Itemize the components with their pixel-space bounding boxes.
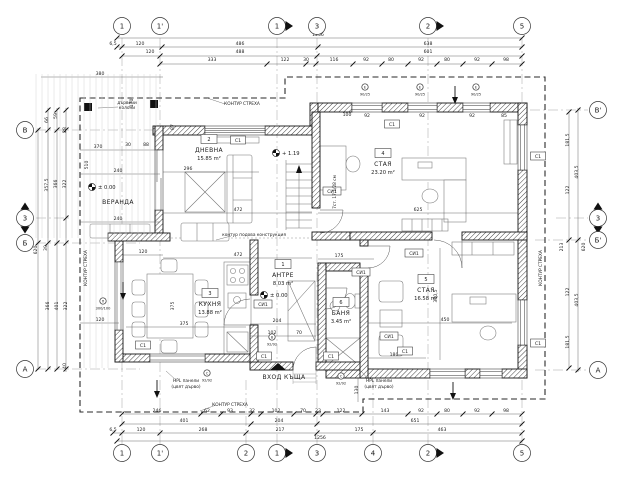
annotation: контур подова конструкция xyxy=(222,233,286,238)
annotation: (цвят дърво) xyxy=(364,384,393,390)
chair xyxy=(161,340,177,353)
axis-bubble-2: 2 xyxy=(238,445,255,462)
veranda-label: ВЕРАНДА xyxy=(102,199,134,206)
axis-label: В' xyxy=(595,106,602,114)
room-area: 15.85 m² xyxy=(197,156,221,162)
axis-label: 3 xyxy=(23,214,27,222)
bookshelf xyxy=(402,219,448,231)
dimension-text: 370 xyxy=(94,144,103,150)
dimension-text: 120 xyxy=(96,317,105,323)
dimension-text: 28 xyxy=(62,127,68,133)
dimension-text: 488 xyxy=(236,49,245,55)
tag-letter: П xyxy=(102,299,105,303)
axis-label: А xyxy=(23,365,28,373)
room-number: 5 xyxy=(424,277,427,283)
dimension-text: 66 xyxy=(44,117,50,123)
axis-bubble-4: 4 xyxy=(365,445,382,462)
tag-numbers: 92/92 xyxy=(267,343,277,347)
window-tag: С1 xyxy=(140,343,146,349)
dimension-text: 180 xyxy=(390,352,399,358)
dimension-text: 93 xyxy=(227,408,233,414)
desk-l-horizontal xyxy=(402,158,466,180)
dimension-text: 98 xyxy=(503,408,509,414)
door-tag: СИ1 xyxy=(384,334,394,340)
axis-bubble-1: 1 xyxy=(114,445,131,462)
dimension-text: 175 xyxy=(355,427,364,433)
chair xyxy=(132,322,145,337)
room-area: 8.03 m² xyxy=(273,281,293,287)
axis-bubble-Б: Б xyxy=(17,235,34,252)
furniture xyxy=(90,120,517,366)
room-area: 13.88 m² xyxy=(198,310,222,316)
dimension-text: 120 xyxy=(136,41,145,47)
dimension-text: 322 xyxy=(62,180,68,189)
desk-chair xyxy=(422,189,438,203)
axis-bubble-В: В xyxy=(17,122,34,139)
chair xyxy=(161,259,177,272)
room-name: КУХНЯ xyxy=(199,301,222,308)
dimension-text: 122 xyxy=(565,288,571,297)
floor-plan-drawing: 12566,5120486638120488601333122301169280… xyxy=(0,0,625,482)
element-tag: П300/100 xyxy=(96,298,112,311)
annotation: 7ст. 17.1/28 см xyxy=(332,175,338,209)
dimension-text: 87 xyxy=(170,124,176,130)
axis-label: 1 xyxy=(275,22,279,30)
dimension-text: 70 xyxy=(296,330,302,336)
wood-column xyxy=(150,100,158,108)
dimension-text: 625 xyxy=(414,207,423,213)
axis-label: 5 xyxy=(520,449,524,457)
wardrobe xyxy=(452,242,514,255)
dimension-text: 143 xyxy=(381,408,390,414)
axis-label: Б xyxy=(23,239,28,247)
window-tag: С1 xyxy=(535,341,541,347)
dimension-text: 102 xyxy=(272,408,281,414)
desk xyxy=(452,294,516,322)
dimension-text: 333 xyxy=(208,57,217,63)
dimension-text: 240 xyxy=(114,216,123,222)
dimension-text: 366 xyxy=(45,302,51,311)
axis-label: 4 xyxy=(371,449,376,457)
floor-plan-sheet: 12566,5120486638120488601333122301169280… xyxy=(0,0,625,482)
level-marker: ± 0.00 xyxy=(89,184,116,192)
dimension-text: 92 xyxy=(419,113,425,119)
dimension-text: 181,5 xyxy=(565,133,571,146)
dimension-text: 246 xyxy=(153,408,162,414)
axis-label: 1 xyxy=(275,449,279,457)
dimension-text: 472 xyxy=(234,252,243,258)
room-label-антре: 1АНТРЕ8.03 m² xyxy=(272,260,294,288)
dimension-text: 120 xyxy=(137,427,146,433)
room-area: 16.58 m² xyxy=(414,296,438,302)
axis-bubble-1: 1 xyxy=(269,18,294,35)
axis-label: Б' xyxy=(595,236,602,244)
axis-label: 3 xyxy=(315,22,319,30)
room-number: 6 xyxy=(339,300,342,306)
chair xyxy=(132,280,145,295)
dimension-text: 601 xyxy=(424,49,433,55)
tag-letter: Е xyxy=(475,85,477,89)
dimension-text: 98 xyxy=(503,57,509,63)
annotation: КОНТУР СТРЕХА xyxy=(538,250,544,286)
dimension-text: 217 xyxy=(276,427,285,433)
dimension-text: 510 xyxy=(84,161,90,170)
section-arrow xyxy=(437,448,445,458)
room-area: 3.45 m² xyxy=(331,319,351,325)
annotation: КОНТУР СТРЕХА xyxy=(224,101,260,107)
desk-l-vertical xyxy=(444,180,466,222)
dimension-text: 401 xyxy=(54,302,60,311)
annotation: (цвят дърво) xyxy=(171,384,200,390)
dimension-text: 122 xyxy=(565,186,571,195)
dimension-text: 120 xyxy=(139,249,148,255)
dimension-text: 638 xyxy=(424,41,433,47)
tag-numbers: 92/92 xyxy=(202,379,212,383)
room-number: 1 xyxy=(281,262,284,268)
element-tag: С92/92 xyxy=(202,370,212,383)
dimension-text: 366 xyxy=(53,180,59,189)
axis-bubble-А: А xyxy=(590,362,607,379)
tag-numbers: 300/100 xyxy=(96,307,112,311)
dimension-text: 175 xyxy=(335,253,344,259)
axis-bubble-2: 2 xyxy=(420,445,445,462)
dimension-text: 403,5 xyxy=(574,165,580,178)
axis-bubble-1: 1 xyxy=(269,445,294,462)
room-name: СТАЯ xyxy=(374,161,392,168)
dimension-text: 240 xyxy=(114,168,123,174)
dimension-text: 80 xyxy=(444,57,450,63)
tag-numbers: 92/92 xyxy=(336,382,346,386)
dimension-text: 92 xyxy=(364,113,370,119)
dimension-text: 620 xyxy=(33,246,39,255)
dimension-text: 30 xyxy=(125,142,131,148)
section-arrow xyxy=(286,21,294,31)
axis-label: 2 xyxy=(244,449,248,457)
tall-cabinet xyxy=(504,120,517,164)
dimension-text: 59 xyxy=(53,113,59,119)
side-table xyxy=(380,310,402,327)
annotation: HPL панели xyxy=(366,378,392,384)
axis-bubble-В': В' xyxy=(590,102,607,119)
tag-letter: Е xyxy=(364,85,366,89)
toilet-tank xyxy=(355,294,360,308)
axis-label: 1 xyxy=(120,449,124,457)
annotation: колони xyxy=(119,106,135,111)
section-arrow xyxy=(594,203,603,210)
room-label-дневна: 2ДНЕВНА15.85 m² xyxy=(195,135,224,163)
dimension-text: 122 xyxy=(337,408,346,414)
dimension-text: 100 xyxy=(343,112,352,118)
dimension-text: 486 xyxy=(236,41,245,47)
tag-numbers: 90/25 xyxy=(360,93,370,97)
section-arrow xyxy=(437,21,445,31)
level-value: ± 0.00 xyxy=(270,293,288,299)
dimension-text: 92 xyxy=(474,57,480,63)
element-tag: Е90/25 xyxy=(471,84,481,97)
desk-chair-2 xyxy=(346,156,360,172)
dimension-text: 92 xyxy=(469,113,475,119)
axis-label: 1 xyxy=(120,22,124,30)
dimension-text: 268 xyxy=(199,427,208,433)
dimension-text: 92 xyxy=(474,408,480,414)
axis-bubble-А: А xyxy=(17,361,34,378)
room-label-кухня: 3КУХНЯ13.88 m² xyxy=(198,289,222,317)
dimension-text: 92 xyxy=(363,57,369,63)
window-tag: С1 xyxy=(328,354,334,360)
desk-chair xyxy=(480,326,496,340)
stair-arrow-head xyxy=(296,165,302,173)
window-tag: С1 xyxy=(535,154,541,160)
dimension-text: 204 xyxy=(275,418,284,424)
axis-label: В xyxy=(23,126,28,134)
tag-numbers: 90/25 xyxy=(471,93,481,97)
dimension-text: 620 xyxy=(581,243,587,252)
dimension-text: 23 xyxy=(315,408,321,414)
entrance-label: ВХОД КЪЩА xyxy=(262,374,306,381)
level-value: + 1.19 xyxy=(282,151,300,157)
chair xyxy=(195,322,208,337)
dimension-text: 40 xyxy=(62,363,68,369)
section-arrow xyxy=(21,203,30,210)
axis-bubble-2: 2 xyxy=(420,18,445,35)
room-label-баня: 6БАНЯ3.45 m² xyxy=(331,298,351,326)
dimension-text: 122 xyxy=(281,57,290,63)
axis-bubble-1: 1 xyxy=(114,18,131,35)
dimension-text: 88 xyxy=(143,142,149,148)
annotation: КОНТУР СТРЕХА xyxy=(83,250,89,286)
window-tag: С1 xyxy=(235,138,241,144)
annotation: HPL панели xyxy=(173,378,199,384)
axis-label: 2 xyxy=(426,449,430,457)
sink xyxy=(228,293,246,308)
window-tag: С1 xyxy=(402,349,408,355)
dimension-text: 120 xyxy=(146,49,155,55)
tag-letter: Е xyxy=(419,85,421,89)
stove xyxy=(227,265,248,285)
level-marker: ± 0.00 xyxy=(261,292,288,300)
level-marker: + 1.19 xyxy=(273,150,300,158)
dimension-text: 85 xyxy=(501,113,507,119)
axis-bubble-1': 1' xyxy=(152,18,169,35)
armchair xyxy=(379,281,403,302)
axis-bubble-3: 3 xyxy=(309,18,326,35)
wood-column xyxy=(84,103,92,111)
dimension-text: 62 xyxy=(204,408,210,414)
axis-label: А xyxy=(596,366,601,374)
staircase xyxy=(286,160,312,230)
level-value: ± 0.00 xyxy=(98,185,116,191)
axis-label: 5 xyxy=(520,22,524,30)
dimension-text: 130 xyxy=(354,386,360,395)
dimension-text: 357,5 xyxy=(44,178,50,191)
dimension-text: 70 xyxy=(300,408,306,414)
dimension-text: 296 xyxy=(184,166,193,172)
dimension-text: 450 xyxy=(441,317,450,323)
dimension-text: 1256 xyxy=(314,435,326,441)
section-arrow xyxy=(21,227,30,234)
element-tag: Е90/25 xyxy=(415,84,425,97)
dimension-text: 6,5 xyxy=(109,41,116,47)
dimension-text: 80 xyxy=(444,408,450,414)
tag-numbers: 90/25 xyxy=(415,93,425,97)
room-name: СТАЯ xyxy=(417,287,435,294)
door-tag: СИ1 xyxy=(409,251,419,257)
dimension-text: 380 xyxy=(96,71,105,77)
door-tag: СИ1 xyxy=(258,302,268,308)
dimension-text: 116 xyxy=(330,57,339,63)
axis-bubble-5: 5 xyxy=(514,445,531,462)
window-tag: С1 xyxy=(389,122,395,128)
room-number: 3 xyxy=(208,291,211,297)
dimension-text: 375 xyxy=(170,302,176,311)
room-name: ДНЕВНА xyxy=(195,147,224,154)
dining-table xyxy=(147,274,193,338)
annotation: КОНТУР СТРЕХА xyxy=(212,402,248,408)
dimension-text: 181,5 xyxy=(565,335,571,348)
axis-label: 1' xyxy=(157,449,163,457)
axis-label: 2 xyxy=(426,22,430,30)
dimension-text: 6,5 xyxy=(109,427,116,433)
window-tag: С1 xyxy=(261,354,267,360)
dimension-text: 403,5 xyxy=(574,293,580,306)
axis-bubble-3: 3 xyxy=(17,203,34,234)
room-name: АНТРЕ xyxy=(272,272,294,279)
room-label-стая: 4СТАЯ23.20 m² xyxy=(371,149,395,177)
dimension-text: 213 xyxy=(559,243,565,252)
dimension-text: 463 xyxy=(438,427,447,433)
dimension-text: 92 xyxy=(418,57,424,63)
axis-bubble-3: 3 xyxy=(309,445,326,462)
dimension-text: 322 xyxy=(63,302,69,311)
axis-label: 3 xyxy=(315,449,319,457)
axis-label: 3 xyxy=(596,214,600,222)
room-area: 23.20 m² xyxy=(371,170,395,176)
dimension-text: 92 xyxy=(418,408,424,414)
axis-bubble-5: 5 xyxy=(514,18,531,35)
room-label-стая: 5СТАЯ16.58 m² xyxy=(414,275,438,303)
dimension-text: 39 xyxy=(43,245,49,251)
door-tag: СИ1 xyxy=(356,270,366,276)
dimension-text: 80 xyxy=(388,57,394,63)
dimension-text: 204 xyxy=(273,318,282,324)
dimension-text: 651 xyxy=(411,418,420,424)
axis-bubble-Б': Б' xyxy=(590,232,607,249)
room-name: БАНЯ xyxy=(332,310,351,317)
dimension-text: 472 xyxy=(234,207,243,213)
dimension-text: 32 xyxy=(249,408,255,414)
room-number: 4 xyxy=(381,151,384,157)
chair xyxy=(132,302,145,317)
axis-label: 1' xyxy=(157,22,163,30)
axis-bubble-3: 3 xyxy=(590,203,607,234)
dimension-text: 375 xyxy=(180,321,189,327)
dimension-text: 30 xyxy=(303,57,309,63)
section-arrow xyxy=(286,448,294,458)
element-tag: Е90/25 xyxy=(360,84,370,97)
axis-bubble-1': 1' xyxy=(152,445,169,462)
room-number: 2 xyxy=(207,137,210,143)
dimension-text: 401 xyxy=(180,418,189,424)
